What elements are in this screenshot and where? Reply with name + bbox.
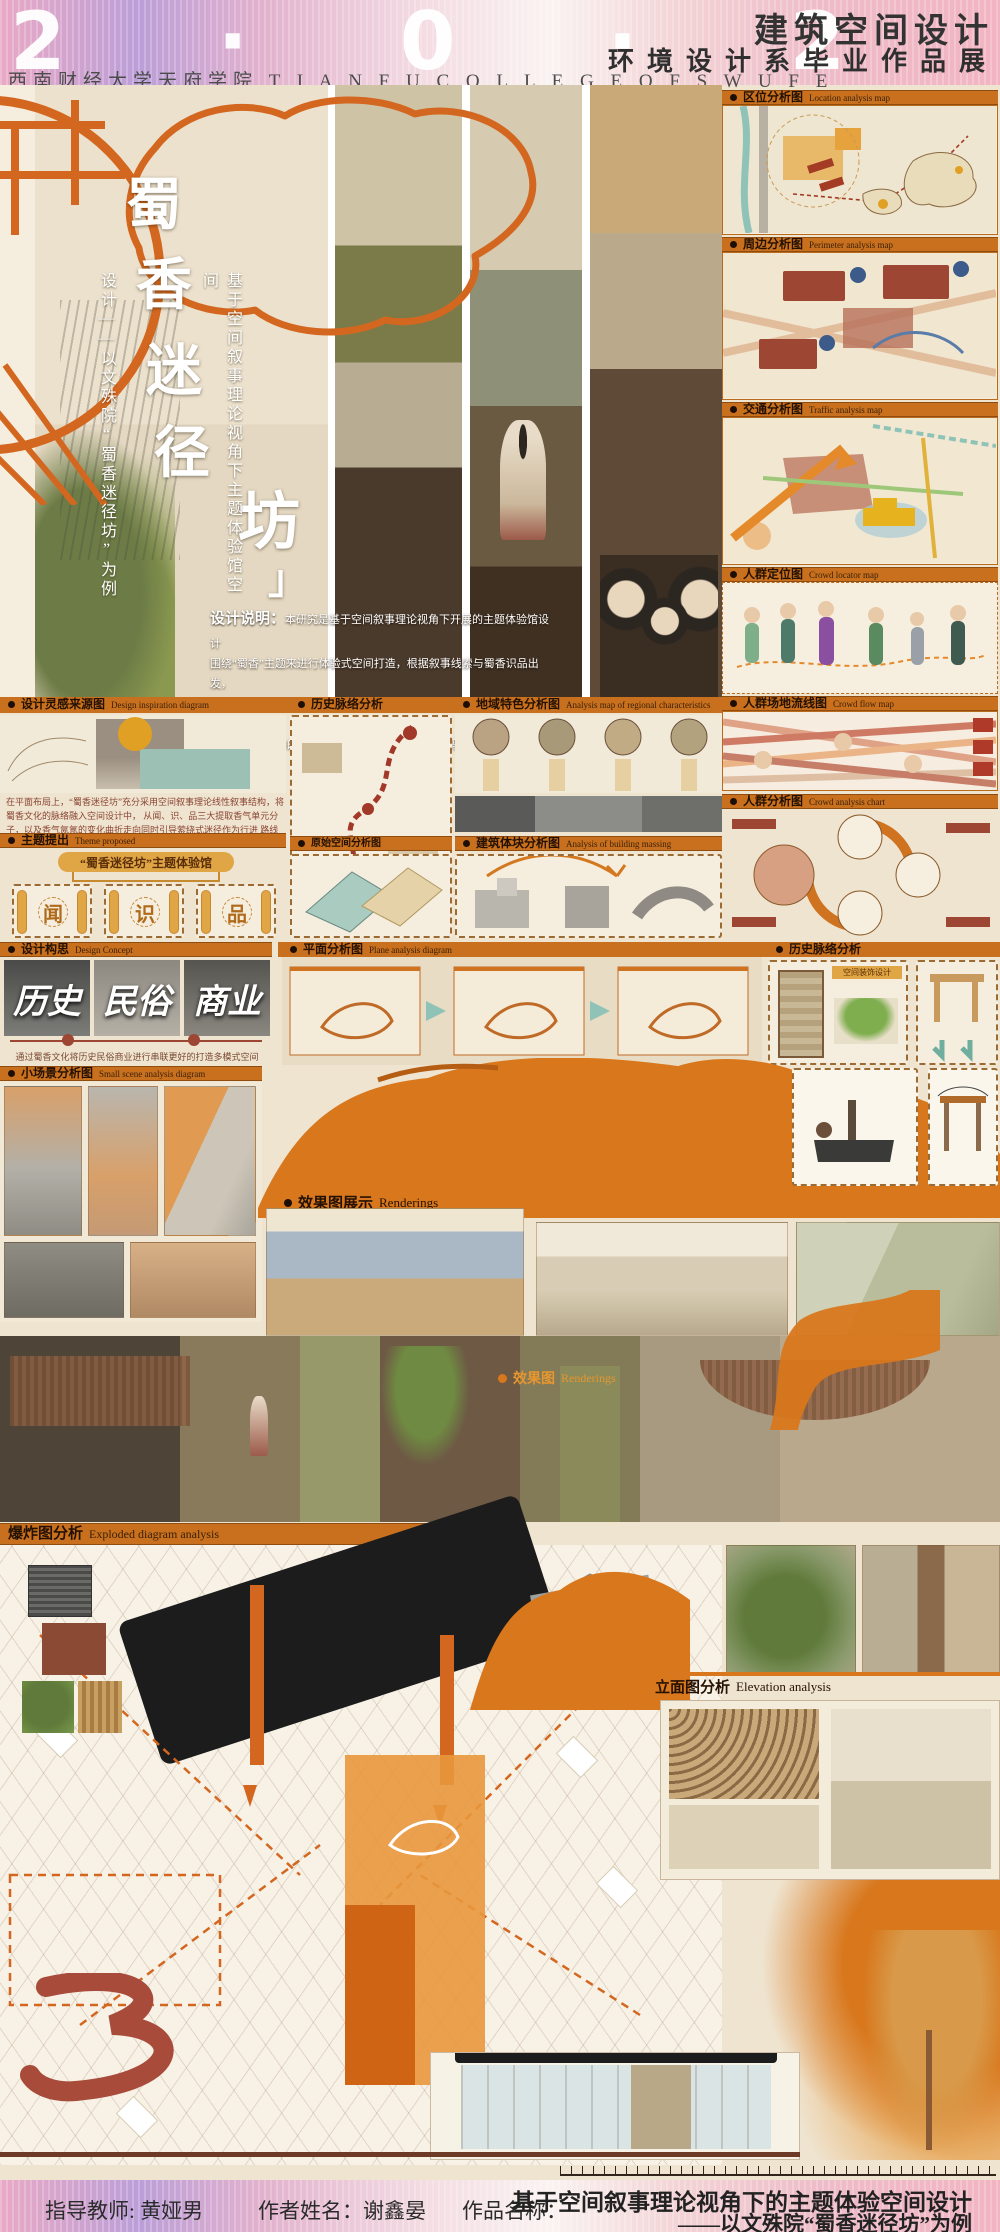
theme-unit-shi: 识 <box>104 884 184 938</box>
section-label-location-map: 区位分析图 Location analysis map <box>722 90 998 105</box>
section-label-history2: 历史脉络分析 <box>768 942 918 957</box>
section-label-theme: 主题提出 Theme proposed <box>0 833 286 848</box>
teal-swatch <box>140 749 250 789</box>
gold-dot <box>118 717 152 751</box>
advisor-name: 指导教师: 黄娅男 <box>45 2195 203 2225</box>
theme-unit-pin: 品 <box>196 884 276 938</box>
street-photo-bw <box>455 796 722 832</box>
section-label-original-space: 原始空间分析图 <box>290 836 452 851</box>
work-title-line2: ——以文殊院“蜀香迷径坊”为例 <box>678 2208 972 2232</box>
original-space-panel <box>290 854 452 938</box>
crowd-locator-map <box>722 582 998 694</box>
bullet-icon <box>730 571 737 578</box>
bullet-icon <box>463 701 470 708</box>
bullet-icon <box>298 701 305 708</box>
bullet-icon <box>290 946 297 953</box>
building-elevation <box>430 2052 800 2160</box>
render-bar-interior <box>266 1208 524 1336</box>
section-drawing-1 <box>660 1700 1000 1880</box>
crowd-analysis-chart <box>722 809 998 939</box>
orange-branch <box>740 1290 940 1430</box>
bullet-icon <box>776 946 783 953</box>
section-label-history: 历史脉络分析 <box>290 697 452 712</box>
subtitle-left-column: 设计——以文殊院“蜀香迷径坊”为例 <box>94 272 118 632</box>
header-banner: 2 · 0 · 2 · 5 建筑空间设计 环境设计系毕业作品展 西南财经大学天府… <box>0 0 1000 85</box>
location-map <box>722 105 998 235</box>
design-description-label: 设计说明： <box>210 611 285 627</box>
section-label-massing: 建筑体块分析图 Analysis of building massing <box>455 836 722 851</box>
hanfu-figure <box>500 420 546 540</box>
perimeter-map <box>722 252 998 400</box>
bullet-icon <box>730 406 737 413</box>
section-label-perimeter-map: 周边分析图 Perimeter analysis map <box>722 237 998 252</box>
bullet-icon <box>298 840 305 847</box>
main-title-char-3: 迷 <box>146 344 202 400</box>
section-label-small-scene: 小场景分析图 Small scene analysis diagram <box>0 1066 262 1081</box>
bullet-icon <box>463 840 470 847</box>
concept-line <box>10 1040 262 1042</box>
decor-tag: 空间装饰设计 <box>832 966 902 979</box>
theme-unit-wen: 闻 <box>12 884 92 938</box>
sketch-lines <box>2 721 92 787</box>
inspiration-collage <box>0 715 286 793</box>
subtitle-right-column: 基于空间叙事理论视角下主题体验馆空间 <box>196 272 244 602</box>
tree-green <box>380 1346 470 1466</box>
main-title-char-2: 香 <box>136 258 192 314</box>
poster: 2 · 0 · 2 · 5 建筑空间设计 环境设计系毕业作品展 西南财经大学天府… <box>0 0 1000 2232</box>
section-label-regional: 地域特色分析图 Analysis map of regional charact… <box>455 697 722 712</box>
bullet-icon <box>8 946 15 953</box>
section-label-inspiration: 设计灵感来源图 Design inspiration diagram <box>0 697 286 712</box>
render-calligraphy-wall <box>862 1545 1000 1675</box>
bullet-icon <box>730 798 737 805</box>
concept-photo-folk: 民俗 <box>94 960 180 1036</box>
section-label-plane: 平面分析图 Plane analysis diagram <box>282 942 512 957</box>
bullet-icon <box>730 241 737 248</box>
massing-panel <box>455 854 722 938</box>
red-dot <box>62 1034 74 1046</box>
main-title-char-1: 蜀 <box>126 178 182 234</box>
screen-bonsai-panel: 空间装饰设计 <box>768 960 908 1065</box>
section-label-concept: 设计构思 Design Concept <box>0 942 272 957</box>
section-label-render: 效果图 Renderings <box>498 1368 616 1388</box>
bullet-icon <box>8 701 15 708</box>
bullet-icon <box>284 1199 292 1207</box>
section-label-crowd-analysis: 人群分析图 Crowd analysis chart <box>722 794 998 809</box>
main-title-bracket: 」 <box>268 560 308 600</box>
bullet-icon <box>730 94 737 101</box>
section-label-crowd-locator: 人群定位图 Crowd locator map <box>722 567 998 582</box>
tea-table-sketch <box>792 1068 918 1186</box>
bonsai <box>834 998 898 1044</box>
section-label-traffic-map: 交通分析图 Traffic analysis map <box>722 402 998 417</box>
material-swatches <box>18 1565 114 1735</box>
regional-panel <box>455 715 722 793</box>
section-label-elevation: 立面图分析 Elevation analysis <box>655 1676 831 1697</box>
render-rock-garden <box>726 1545 856 1675</box>
folding-screen <box>778 970 824 1058</box>
small-scene-montage <box>0 1082 262 1322</box>
pavilion-sketch <box>928 1068 998 1186</box>
figure-hint <box>250 1396 268 1456</box>
autumn-tree <box>860 1930 1000 2160</box>
author-name: 作者姓名：谢鑫晏 <box>258 2195 426 2225</box>
red-dot <box>188 1034 200 1046</box>
concept-photo-history: 历史 <box>4 960 90 1036</box>
slit-divider <box>582 85 590 702</box>
bullet-icon <box>8 1070 15 1077</box>
plan-row <box>282 957 762 1065</box>
ladies-painting <box>600 555 718 702</box>
traffic-map <box>722 417 998 565</box>
spiral-numeral-3 <box>16 1973 216 2103</box>
timber-frame-panel <box>916 960 998 1065</box>
main-title-char-5: 坊 <box>238 492 300 554</box>
concept-caption: 通过蜀香文化将历史民俗商业进行串联更好的打造多模式空间 <box>6 1050 268 1063</box>
ground-line <box>0 2152 800 2157</box>
section-label-crowd-flow: 人群场地流线图 Crowd flow map <box>722 696 998 711</box>
bullet-icon <box>498 1374 507 1383</box>
elevation-rule <box>640 1672 1000 1676</box>
crowd-flow-map <box>722 711 998 791</box>
theme-branches <box>72 872 220 882</box>
theme-banner: “蜀香迷径坊”主题体验馆 <box>58 852 234 872</box>
scale-bar <box>560 2166 996 2176</box>
bullet-icon <box>8 837 15 844</box>
bullet-icon <box>730 700 737 707</box>
concept-photo-commerce: 商业 <box>184 960 270 1036</box>
